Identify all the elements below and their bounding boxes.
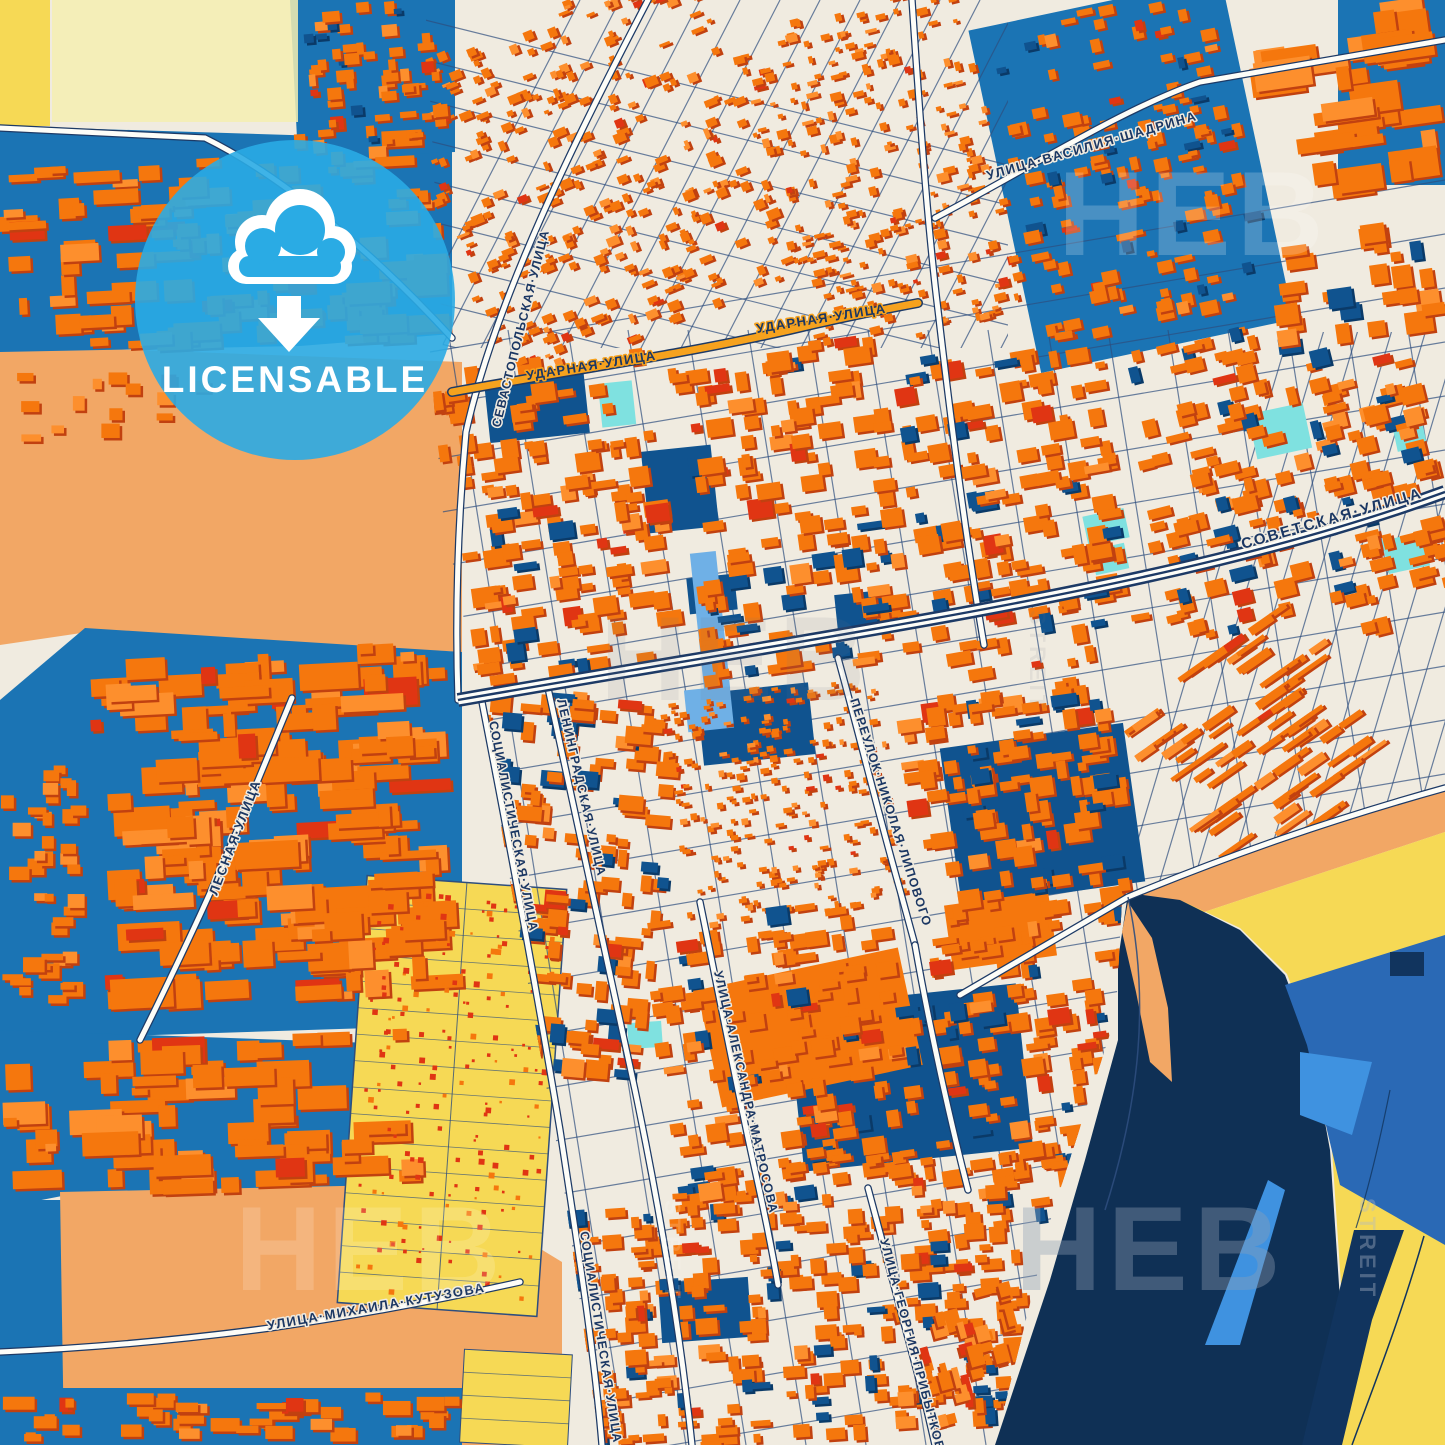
map-poster: УЛИЦА·ВАСИЛИЯ·ШАДРИНА УДАРНАЯ·УЛИЦА УДАР… [0, 0, 1445, 1445]
licensable-badge[interactable]: LICENSABLE [135, 140, 455, 460]
badge-label: LICENSABLE [162, 359, 428, 400]
city-map: УЛИЦА·ВАСИЛИЯ·ШАДРИНА УДАРНАЯ·УЛИЦА УДАР… [0, 0, 1445, 1445]
